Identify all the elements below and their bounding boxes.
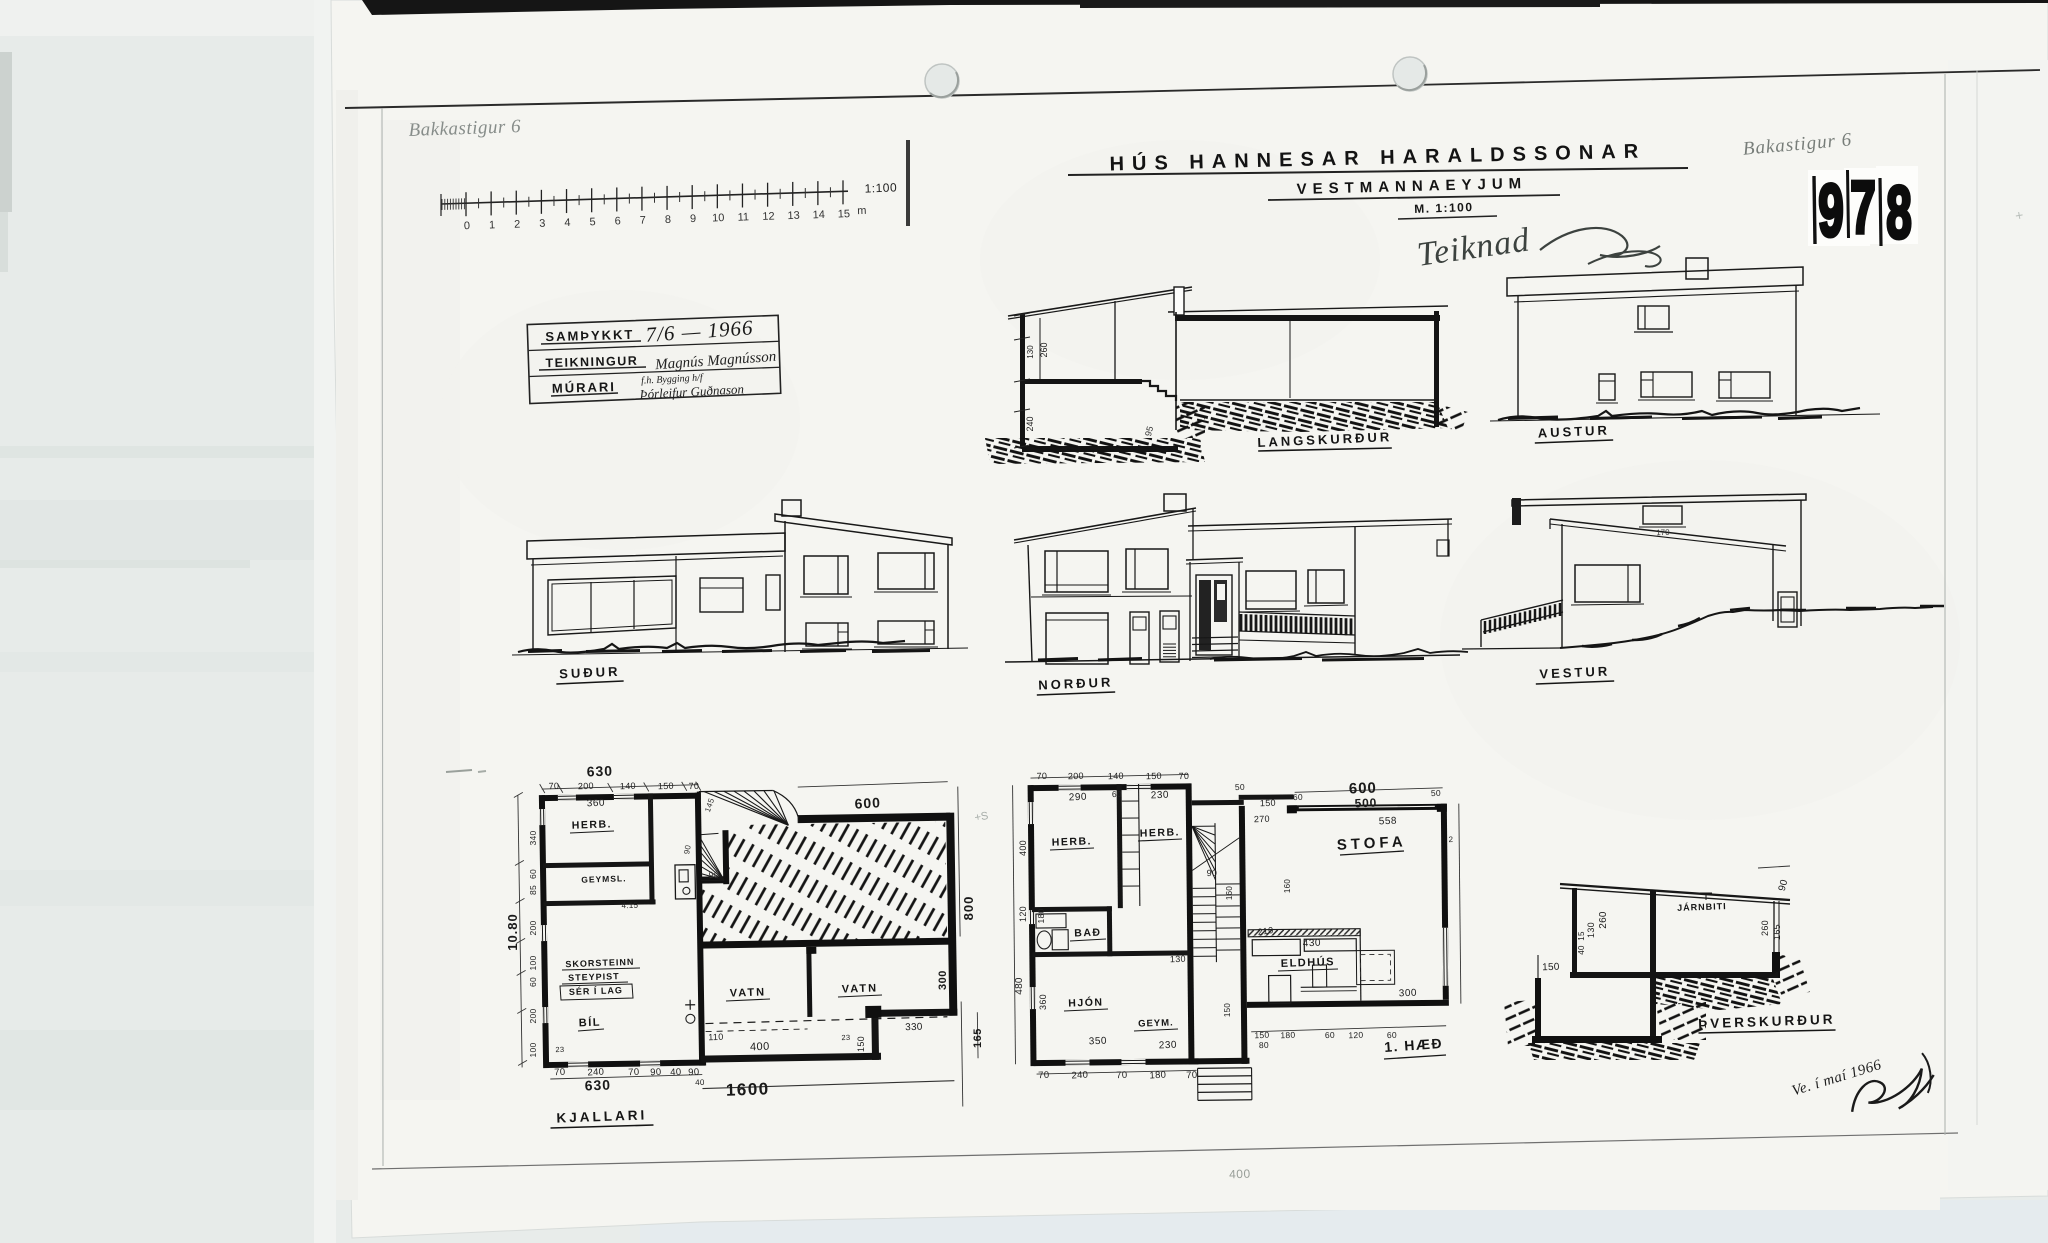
svg-text:60: 60 bbox=[528, 869, 538, 879]
svg-text:40: 40 bbox=[695, 1078, 705, 1087]
svg-text:VESTUR: VESTUR bbox=[1539, 663, 1610, 681]
svg-text:90: 90 bbox=[1206, 868, 1217, 878]
svg-text:60: 60 bbox=[1325, 1030, 1335, 1040]
svg-text:HERB.: HERB. bbox=[572, 818, 613, 831]
svg-text:130: 130 bbox=[1586, 922, 1596, 938]
svg-text:100: 100 bbox=[528, 1042, 538, 1057]
svg-text:7: 7 bbox=[1850, 167, 1876, 250]
svg-text:GEYMSL.: GEYMSL. bbox=[581, 873, 627, 885]
svg-text:70: 70 bbox=[1038, 1070, 1050, 1082]
svg-text:80: 80 bbox=[1259, 1040, 1269, 1050]
svg-text:8: 8 bbox=[1886, 172, 1912, 255]
svg-text:200: 200 bbox=[578, 781, 594, 792]
svg-text:180: 180 bbox=[1036, 908, 1046, 923]
svg-text:60: 60 bbox=[1112, 789, 1122, 799]
svg-text:100: 100 bbox=[528, 955, 538, 970]
svg-text:4.15: 4.15 bbox=[621, 901, 638, 911]
svg-text:130: 130 bbox=[1170, 954, 1186, 965]
svg-text:90: 90 bbox=[688, 1067, 700, 1079]
svg-text:150: 150 bbox=[1542, 962, 1560, 974]
svg-text:SÉR Í LAG: SÉR Í LAG bbox=[569, 985, 623, 997]
svg-text:60: 60 bbox=[528, 977, 538, 987]
svg-text:600: 600 bbox=[854, 794, 881, 811]
svg-text:165: 165 bbox=[972, 1028, 984, 1048]
svg-text:m: m bbox=[857, 205, 867, 217]
svg-text:230: 230 bbox=[1151, 790, 1170, 802]
svg-text:300: 300 bbox=[1399, 988, 1418, 1000]
svg-text:Bakkastigur 6: Bakkastigur 6 bbox=[408, 116, 521, 141]
svg-text:200: 200 bbox=[528, 1008, 538, 1023]
svg-text:260: 260 bbox=[1039, 342, 1049, 357]
svg-text:70: 70 bbox=[688, 781, 699, 791]
svg-text:5: 5 bbox=[589, 216, 596, 228]
svg-text:11: 11 bbox=[737, 211, 749, 223]
svg-text:150: 150 bbox=[856, 1036, 866, 1052]
svg-text:70: 70 bbox=[1178, 771, 1189, 781]
svg-text:270: 270 bbox=[1254, 814, 1270, 825]
svg-text:70: 70 bbox=[628, 1067, 640, 1079]
svg-text:160: 160 bbox=[1225, 886, 1234, 900]
svg-text:85: 85 bbox=[528, 885, 538, 895]
svg-text:150: 150 bbox=[1260, 798, 1276, 809]
svg-text:10: 10 bbox=[712, 212, 725, 224]
svg-text:360: 360 bbox=[1038, 994, 1048, 1010]
svg-text:240: 240 bbox=[1025, 416, 1035, 431]
svg-text:110: 110 bbox=[708, 1032, 724, 1043]
svg-text:140: 140 bbox=[1108, 771, 1124, 782]
svg-text:170: 170 bbox=[1656, 528, 1670, 537]
svg-text:VATN: VATN bbox=[730, 986, 767, 999]
svg-text:3: 3 bbox=[539, 218, 546, 230]
svg-text:0: 0 bbox=[464, 220, 471, 232]
svg-text:160: 160 bbox=[1283, 879, 1292, 893]
svg-text:350: 350 bbox=[1089, 1036, 1108, 1048]
svg-text:23: 23 bbox=[841, 1033, 850, 1042]
svg-text:70: 70 bbox=[1186, 1070, 1198, 1082]
svg-text:AUSTUR: AUSTUR bbox=[1537, 422, 1610, 440]
svg-text:9: 9 bbox=[690, 213, 697, 225]
svg-text:15: 15 bbox=[1577, 931, 1586, 941]
svg-text:140: 140 bbox=[620, 781, 636, 792]
svg-text:1: 1 bbox=[489, 219, 496, 231]
svg-text:VATN: VATN bbox=[842, 982, 879, 995]
svg-text:GEYM.: GEYM. bbox=[1138, 1017, 1174, 1029]
svg-text:260: 260 bbox=[1760, 920, 1770, 936]
svg-text:90: 90 bbox=[708, 870, 719, 880]
svg-text:558: 558 bbox=[1379, 816, 1398, 828]
svg-text:14: 14 bbox=[812, 209, 825, 221]
svg-text:200: 200 bbox=[528, 920, 538, 935]
svg-text:70: 70 bbox=[548, 781, 559, 791]
svg-text:HERB.: HERB. bbox=[1052, 835, 1093, 848]
svg-text:6: 6 bbox=[614, 215, 621, 227]
svg-text:360: 360 bbox=[587, 798, 606, 810]
svg-text:60: 60 bbox=[1293, 792, 1303, 802]
svg-text:10.80: 10.80 bbox=[505, 913, 520, 951]
svg-text:1:100: 1:100 bbox=[864, 180, 897, 195]
svg-text:7: 7 bbox=[640, 215, 647, 227]
svg-text:BAÐ: BAÐ bbox=[1074, 927, 1102, 940]
svg-text:340: 340 bbox=[528, 830, 538, 845]
svg-text:165: 165 bbox=[1772, 924, 1782, 940]
svg-text:40: 40 bbox=[1577, 945, 1586, 955]
svg-text:8: 8 bbox=[665, 214, 672, 226]
svg-text:180: 180 bbox=[1149, 1070, 1166, 1082]
svg-text:70: 70 bbox=[1036, 771, 1047, 781]
svg-text:230: 230 bbox=[1159, 1040, 1178, 1052]
svg-text:120: 120 bbox=[1348, 1030, 1363, 1041]
svg-text:800: 800 bbox=[961, 896, 976, 921]
svg-text:180: 180 bbox=[1280, 1030, 1295, 1041]
svg-text:90: 90 bbox=[682, 844, 693, 855]
svg-text:KJALLARI: KJALLARI bbox=[556, 1107, 647, 1125]
svg-text:630: 630 bbox=[584, 1077, 611, 1094]
svg-text:90: 90 bbox=[650, 1067, 662, 1079]
svg-text:480: 480 bbox=[1014, 977, 1025, 995]
svg-text:330: 330 bbox=[905, 1022, 923, 1034]
svg-text:630: 630 bbox=[586, 763, 613, 780]
svg-text:SUÐUR: SUÐUR bbox=[559, 664, 621, 682]
svg-text:2: 2 bbox=[514, 219, 521, 231]
svg-text:ELDHÚS: ELDHÚS bbox=[1281, 955, 1336, 970]
svg-text:70: 70 bbox=[554, 1067, 566, 1079]
svg-text:130: 130 bbox=[1026, 345, 1035, 359]
svg-text:400: 400 bbox=[1229, 1167, 1251, 1182]
svg-text:150: 150 bbox=[1146, 771, 1162, 782]
svg-text:BÍL: BÍL bbox=[579, 1016, 602, 1030]
svg-text:400: 400 bbox=[750, 1041, 770, 1054]
svg-text:240: 240 bbox=[1071, 1070, 1088, 1082]
svg-text:STEYPIST: STEYPIST bbox=[568, 971, 620, 983]
svg-text:40: 40 bbox=[670, 1067, 682, 1079]
svg-text:M. 1:100: M. 1:100 bbox=[1414, 200, 1474, 216]
svg-text:50: 50 bbox=[1431, 788, 1441, 798]
svg-text:HERB.: HERB. bbox=[1140, 826, 1181, 839]
svg-text:9: 9 bbox=[1818, 170, 1844, 253]
svg-text:430: 430 bbox=[1303, 938, 1322, 950]
svg-text:150: 150 bbox=[1254, 1030, 1269, 1041]
svg-text:HJÓN: HJÓN bbox=[1068, 995, 1104, 1009]
svg-text:500: 500 bbox=[1354, 796, 1377, 811]
svg-text:13: 13 bbox=[787, 210, 800, 222]
svg-text:15: 15 bbox=[838, 208, 851, 220]
svg-text:120: 120 bbox=[1018, 906, 1028, 922]
svg-text:290: 290 bbox=[1069, 792, 1088, 804]
svg-text:4: 4 bbox=[564, 217, 571, 229]
svg-text:2: 2 bbox=[1448, 835, 1453, 844]
svg-text:260: 260 bbox=[1598, 911, 1609, 929]
svg-text:1600: 1600 bbox=[726, 1079, 770, 1100]
svg-text:150: 150 bbox=[1223, 1003, 1232, 1017]
svg-text:23: 23 bbox=[555, 1045, 564, 1054]
svg-text:+S: +S bbox=[974, 810, 990, 824]
svg-text:12: 12 bbox=[762, 211, 775, 223]
svg-text:150: 150 bbox=[658, 781, 674, 792]
svg-text:300: 300 bbox=[937, 970, 949, 990]
svg-text:400: 400 bbox=[1018, 840, 1028, 856]
svg-text:70: 70 bbox=[1116, 1070, 1128, 1082]
svg-text:200: 200 bbox=[1068, 771, 1084, 782]
svg-text:JÁRNBITI: JÁRNBITI bbox=[1677, 901, 1727, 913]
svg-text:50: 50 bbox=[1235, 782, 1245, 792]
